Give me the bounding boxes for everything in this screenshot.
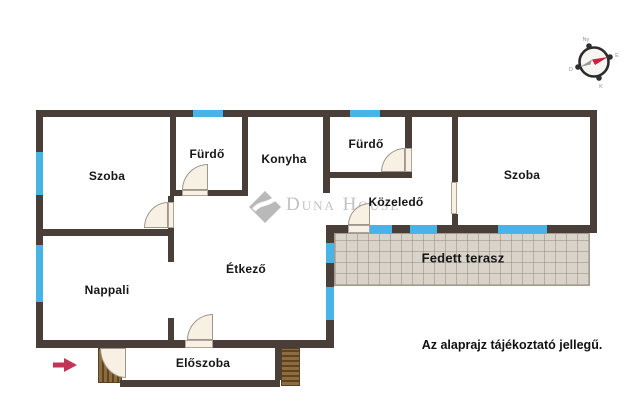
compass-east-label: K — [599, 84, 603, 90]
wall-segment — [120, 380, 280, 387]
wall-segment — [452, 214, 458, 232]
wall-segment — [36, 110, 597, 117]
room-label-szoba-left: Szoba — [89, 169, 125, 183]
door-leaf — [451, 182, 457, 214]
door-leaf — [405, 148, 412, 172]
window — [193, 110, 223, 117]
door-leaf — [182, 190, 208, 196]
wall-segment — [590, 110, 597, 232]
room-label-etkezo: Étkező — [226, 262, 266, 276]
window — [36, 152, 43, 195]
room-label-nappali: Nappali — [85, 283, 130, 297]
compass-west-label: Ny — [583, 37, 590, 43]
room-label-eloszoba: Előszoba — [176, 356, 230, 370]
door-leaf — [348, 225, 370, 233]
room-label-furdo-left: Fürdő — [190, 147, 225, 161]
window — [350, 110, 380, 117]
compass-south-label: D — [569, 67, 573, 73]
window — [36, 245, 43, 302]
window — [410, 225, 437, 233]
room-label-kozeledo: Közeledő — [369, 195, 424, 209]
door-arc — [381, 148, 405, 172]
wall-segment — [170, 117, 176, 196]
wall-segment — [43, 229, 170, 236]
room-label-konyha: Konyha — [261, 152, 306, 166]
window — [326, 287, 334, 320]
wall-segment — [323, 172, 412, 178]
room-label-furdo-right: Fürdő — [349, 137, 384, 151]
floor-plan: Duna House Szoba Fürdő Konyha F — [0, 0, 640, 410]
wall-segment — [275, 348, 281, 380]
wall-segment — [452, 117, 458, 182]
door-leaf — [168, 202, 174, 228]
door-arc — [182, 164, 208, 190]
window — [326, 243, 334, 263]
wall-segment — [242, 117, 248, 196]
door-leaf — [185, 340, 213, 348]
wall-segment — [168, 318, 174, 348]
wall-segment — [36, 110, 43, 348]
window — [368, 225, 392, 233]
door-arc — [144, 202, 168, 228]
room-label-fedett-terasz: Fedett terasz — [422, 251, 505, 266]
compass-icon: É K D Ny — [566, 32, 624, 94]
disclaimer-text: Az alaprajz tájékoztató jellegű. — [422, 338, 603, 352]
window — [498, 225, 547, 233]
compass-north-label: É — [615, 52, 619, 59]
room-label-szoba-right: Szoba — [504, 168, 540, 182]
wood-steps-right — [281, 348, 300, 386]
wall-segment — [323, 117, 330, 193]
entrance-arrow-icon — [51, 356, 79, 374]
door-arc — [187, 314, 213, 340]
duna-house-logo-icon — [247, 189, 283, 225]
